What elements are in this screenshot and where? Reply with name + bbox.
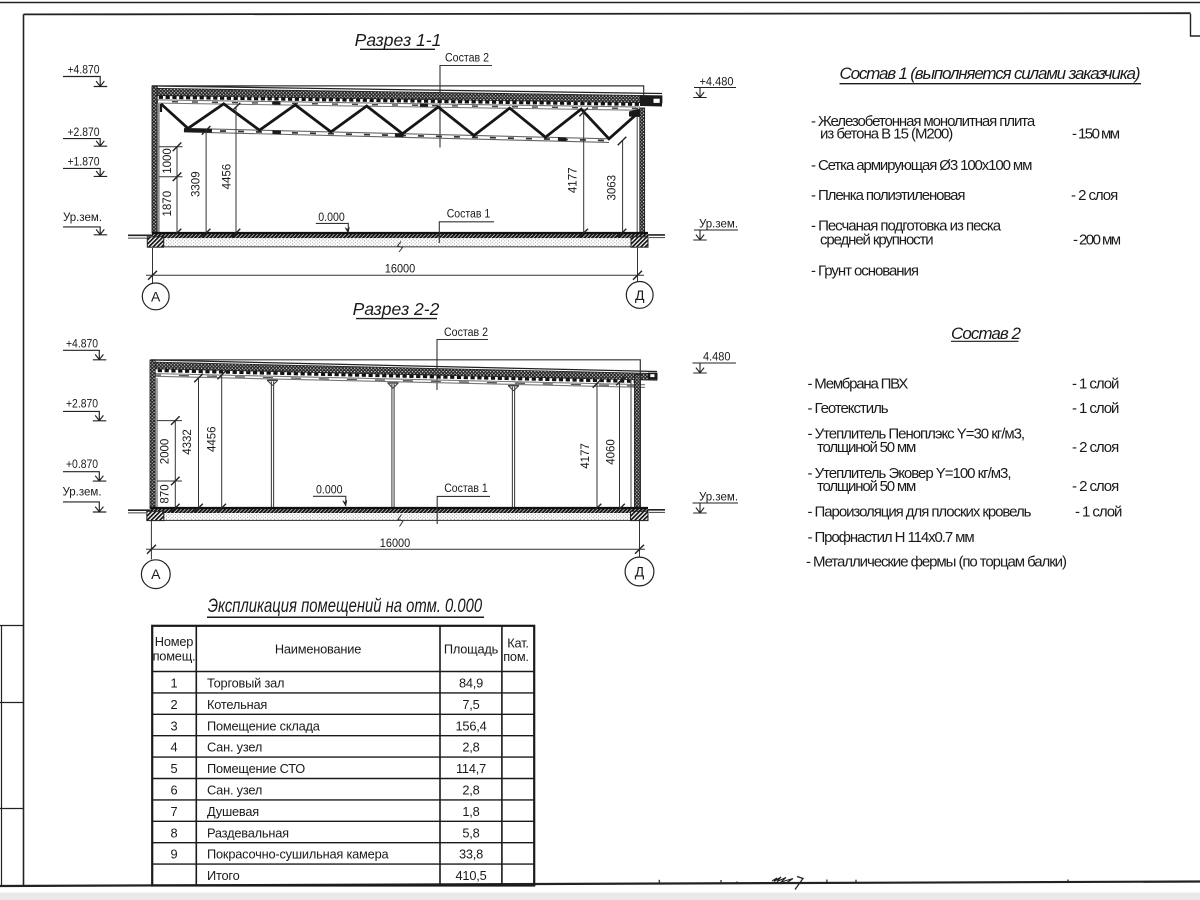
svg-text:Помещение СТО: Помещение СТО bbox=[207, 761, 305, 776]
svg-text:- 1 слой: - 1 слой bbox=[1072, 376, 1119, 393]
svg-text:толщиной 50 мм: толщиной 50 мм bbox=[817, 478, 916, 495]
svg-text:из бетона В 15 (М200): из бетона В 15 (М200) bbox=[820, 126, 953, 143]
svg-text:870: 870 bbox=[160, 484, 172, 503]
svg-text:- 150 мм: - 150 мм bbox=[1072, 126, 1120, 143]
svg-text:8: 8 bbox=[171, 825, 178, 840]
svg-text:Д: Д bbox=[635, 564, 645, 580]
svg-text:Торговый зал: Торговый зал bbox=[207, 676, 284, 691]
svg-text:+4.870: +4.870 bbox=[66, 338, 98, 350]
svg-text:4060: 4060 bbox=[606, 439, 618, 465]
svg-text:410,5: 410,5 bbox=[455, 868, 486, 883]
svg-text:16000: 16000 bbox=[385, 262, 416, 276]
svg-text:Состав 2: Состав 2 bbox=[445, 53, 489, 65]
svg-text:5: 5 bbox=[171, 761, 178, 776]
svg-text:84,9: 84,9 bbox=[459, 676, 483, 691]
svg-text:Ур.зем.: Ур.зем. bbox=[699, 492, 738, 504]
svg-text:- Грунт основания: - Грунт основания bbox=[811, 262, 919, 279]
svg-text:- Пароизоляция для плоских кро: - Пароизоляция для плоских кровель bbox=[808, 504, 1032, 521]
svg-text:- 1 слой: - 1 слой bbox=[1072, 400, 1119, 417]
svg-text:Итого: Итого bbox=[207, 868, 240, 883]
svg-text:А: А bbox=[151, 566, 161, 582]
svg-text:Состав 2: Состав 2 bbox=[951, 324, 1022, 343]
svg-text:33,8: 33,8 bbox=[459, 847, 483, 862]
svg-text:Сан. узел: Сан. узел bbox=[207, 783, 262, 798]
svg-text:4456: 4456 bbox=[206, 426, 218, 452]
svg-text:0.000: 0.000 bbox=[318, 212, 345, 224]
svg-text:- Профнастил Н 114х0.7 мм: - Профнастил Н 114х0.7 мм bbox=[808, 529, 975, 546]
svg-text:Помещение склада: Помещение склада bbox=[207, 718, 321, 733]
svg-text:6: 6 bbox=[171, 783, 178, 798]
svg-text:Сан. узел: Сан. узел bbox=[207, 740, 262, 755]
svg-text:Котельная: Котельная bbox=[207, 697, 267, 712]
svg-text:4177: 4177 bbox=[567, 168, 579, 194]
svg-text:+4.480: +4.480 bbox=[700, 76, 734, 88]
svg-text:5,8: 5,8 bbox=[462, 825, 479, 840]
svg-text:2,8: 2,8 bbox=[462, 740, 479, 755]
svg-text:0.000: 0.000 bbox=[316, 485, 343, 497]
svg-text:Номер: Номер bbox=[155, 634, 193, 649]
svg-text:толщиной 50 мм: толщиной 50 мм bbox=[817, 439, 916, 456]
svg-text:Покрасочно-сушильная камера: Покрасочно-сушильная камера bbox=[207, 847, 389, 862]
svg-text:А: А bbox=[151, 288, 161, 304]
svg-text:1,8: 1,8 bbox=[462, 804, 479, 819]
svg-text:Наименование: Наименование bbox=[275, 642, 361, 657]
svg-text:3: 3 bbox=[171, 718, 178, 733]
svg-text:пом.: пом. bbox=[503, 649, 529, 664]
svg-text:4.480: 4.480 bbox=[703, 352, 731, 364]
svg-text:- 200 мм: - 200 мм bbox=[1073, 231, 1121, 248]
svg-text:1: 1 bbox=[171, 676, 178, 691]
svg-text:- 2 слоя: - 2 слоя bbox=[1072, 478, 1119, 495]
svg-text:3309: 3309 bbox=[191, 171, 203, 197]
svg-text:Состав 1 (выполняется силами з: Состав 1 (выполняется силами заказчика) bbox=[840, 64, 1141, 83]
svg-text:- Сетка армирующая Ø3 100x100: - Сетка армирующая Ø3 100x100 мм bbox=[811, 157, 1032, 174]
svg-text:4: 4 bbox=[171, 740, 178, 755]
svg-text:+2.870: +2.870 bbox=[68, 127, 100, 139]
svg-text:Душевая: Душевая bbox=[207, 804, 259, 819]
svg-text:3063: 3063 bbox=[607, 175, 619, 201]
svg-text:- 2 слоя: - 2 слоя bbox=[1071, 187, 1118, 204]
svg-text:- Мембрана ПВХ: - Мембрана ПВХ bbox=[808, 376, 909, 393]
svg-text:- 1 слой: - 1 слой bbox=[1075, 504, 1122, 521]
svg-text:4456: 4456 bbox=[222, 164, 234, 190]
svg-text:Состав 1: Состав 1 bbox=[447, 209, 491, 221]
svg-text:156,4: 156,4 bbox=[455, 718, 486, 733]
svg-text:7: 7 bbox=[171, 804, 178, 819]
svg-text:Ур.зем.: Ур.зем. bbox=[63, 487, 102, 499]
svg-text:- Геотекстиль: - Геотекстиль bbox=[808, 400, 889, 417]
svg-text:Д: Д bbox=[635, 287, 645, 303]
svg-text:Площадь: Площадь bbox=[444, 642, 499, 657]
svg-text:114,7: 114,7 bbox=[456, 761, 486, 776]
svg-text:Ур.зем.: Ур.зем. bbox=[699, 219, 738, 231]
svg-text:2000: 2000 bbox=[160, 439, 172, 465]
svg-text:средней крупности: средней крупности bbox=[820, 231, 934, 248]
svg-text:- Пленка полиэтиленовая: - Пленка полиэтиленовая bbox=[811, 187, 966, 204]
svg-text:7,5: 7,5 bbox=[462, 697, 479, 712]
svg-text:Ур.зем.: Ур.зем. bbox=[63, 212, 102, 224]
svg-text:+1.870: +1.870 bbox=[68, 157, 100, 169]
svg-text:Раздевальная: Раздевальная bbox=[207, 825, 289, 840]
svg-text:1870: 1870 bbox=[162, 191, 174, 217]
svg-text:Состав 2: Состав 2 bbox=[444, 327, 488, 339]
svg-text:Экспликация помещений на отм.: Экспликация помещений на отм. 0.000 bbox=[208, 596, 483, 617]
svg-text:+4.870: +4.870 bbox=[68, 65, 100, 77]
svg-text:2,8: 2,8 bbox=[462, 783, 479, 798]
svg-text:Разрез 2-2: Разрез 2-2 bbox=[353, 299, 440, 319]
svg-text:+0.870: +0.870 bbox=[66, 459, 98, 471]
svg-text:помещ.: помещ. bbox=[153, 649, 196, 664]
svg-text:Разрез 1-1: Разрез 1-1 bbox=[355, 30, 442, 50]
svg-text:- 2 слоя: - 2 слоя bbox=[1072, 439, 1119, 456]
svg-text:9: 9 bbox=[171, 847, 178, 862]
svg-text:2: 2 bbox=[171, 697, 178, 712]
svg-text:+2.870: +2.870 bbox=[66, 398, 98, 410]
svg-text:16000: 16000 bbox=[380, 536, 411, 550]
svg-text:Состав 1: Состав 1 bbox=[444, 483, 488, 495]
svg-text:- Металлические фермы (по торц: - Металлические фермы (по торцам балки) bbox=[806, 554, 1067, 571]
svg-text:4332: 4332 bbox=[182, 429, 194, 455]
svg-text:1000: 1000 bbox=[162, 148, 174, 174]
svg-text:4177: 4177 bbox=[580, 443, 592, 469]
